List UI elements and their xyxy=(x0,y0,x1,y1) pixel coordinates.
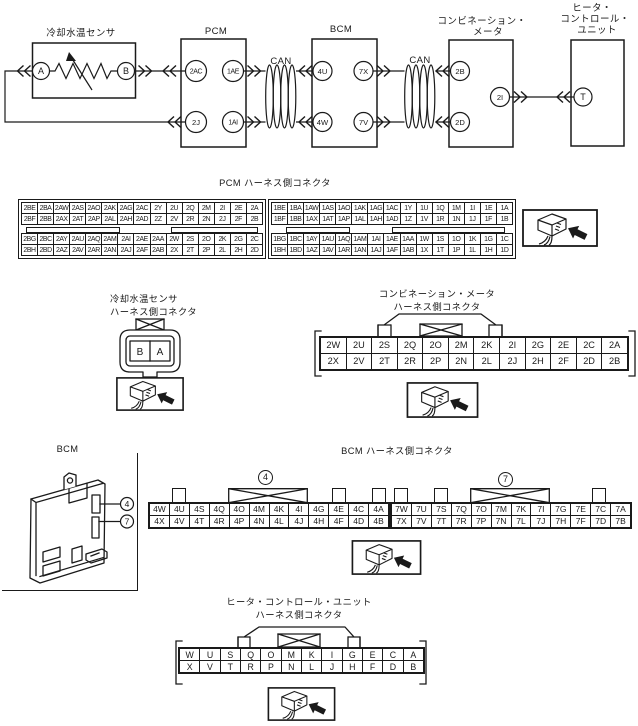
pin-cell: 1N xyxy=(448,213,465,225)
pin-cell: 2AR xyxy=(85,244,102,256)
wire-can-pcm-bcm xyxy=(244,71,314,122)
pin-cell: 7H xyxy=(550,515,571,528)
sensor-title: 冷却水温センサ xyxy=(46,27,115,39)
pcm-connector-grid-left: 2BE2BA2AW2AS2AO2AK2AG2AC2Y2U2Q2M2I2E2A 2… xyxy=(18,199,266,259)
pin-cell: 2L xyxy=(473,353,500,370)
pin-cell: 2J xyxy=(499,353,526,370)
pin-cell: 1AT xyxy=(319,213,336,225)
pin-cell: 1P xyxy=(448,244,465,256)
bcm-connector-label-4: 4 xyxy=(258,470,273,485)
pin-cell: 2N xyxy=(448,353,475,370)
pin-cell: 4L xyxy=(269,515,290,528)
meter-connector-grid: 2W2U2S2Q2O2M2K2I2G2E2C2A 2X2V2T2R2P2N2L2… xyxy=(319,336,629,371)
pin-cell: 2T xyxy=(371,353,398,370)
pin-cell: 1J xyxy=(464,213,481,225)
pin-cell: 7F xyxy=(570,515,591,528)
terminal-1ai: 1AI xyxy=(223,112,244,133)
pin-cell: 2P xyxy=(198,244,215,256)
pin-cell: 7T xyxy=(431,515,452,528)
pin-cell: T xyxy=(220,660,241,673)
pin-cell: B xyxy=(403,660,424,673)
terminal-b: B xyxy=(118,63,135,80)
pin-cell: 4X xyxy=(149,515,170,528)
pin-cell: 2H xyxy=(525,353,552,370)
svg-text:4U: 4U xyxy=(318,67,328,76)
pin-cell: N xyxy=(281,660,302,673)
pin-cell: 2AF xyxy=(133,244,150,256)
pin-cell: 2BD xyxy=(37,244,54,256)
heater-title-line3: ユニット xyxy=(577,25,617,36)
pin-row: 4X4V4T4R4P4N4L4J4H4F4D4B xyxy=(149,515,389,528)
pin-cell: 4D xyxy=(348,515,369,528)
connector-tab xyxy=(372,488,386,503)
heater-connector-title-line1: ヒータ・コントロール・ユニット xyxy=(199,596,399,609)
pin-cell: 2K xyxy=(473,337,500,354)
pin-cell: 7X xyxy=(391,515,412,528)
connector-view-icon xyxy=(350,540,423,575)
pin-cell: 1BH xyxy=(271,244,288,256)
connector-tab xyxy=(592,488,606,503)
pin-cell: 4P xyxy=(229,515,250,528)
keyway-bar xyxy=(286,227,351,233)
pin-cell: 1BF xyxy=(271,213,288,225)
pin-cell: 2AB xyxy=(150,244,167,256)
pin-cell: 2D xyxy=(576,353,603,370)
keyway-bar xyxy=(392,227,505,233)
keyway-bar xyxy=(171,227,258,233)
thermistor-arrow-head xyxy=(66,52,76,61)
terminal-4u: 4U xyxy=(313,62,332,81)
heater-title-line1: ヒータ・ xyxy=(572,3,612,14)
bcm-module-title: BCM xyxy=(40,443,95,456)
connector-view-icon xyxy=(114,377,186,411)
pin-cell: 2BF xyxy=(21,213,38,225)
pin-cell: 1AL xyxy=(351,213,368,225)
terminal-7x: 7X xyxy=(354,62,373,81)
pin-cell: 1AB xyxy=(400,244,417,256)
pin-cell: 2E xyxy=(550,337,577,354)
pin-cell: 2X xyxy=(166,244,183,256)
pin-cell: 1AH xyxy=(367,213,384,225)
svg-text:1AI: 1AI xyxy=(228,120,238,127)
pin-cell: 7J xyxy=(530,515,551,528)
circuit-diagram: A B 2AC 1AE 2J 1AI 4U 7X 4W 7V 2B 2D 2I … xyxy=(0,0,638,165)
pin-cell: 4H xyxy=(308,515,329,528)
pin-cell: 2P xyxy=(422,353,449,370)
pin-cell: 2BB xyxy=(37,213,54,225)
pin-cell: 2V xyxy=(346,353,373,370)
pin-cell: 2AP xyxy=(85,213,102,225)
pin-cell: 2X xyxy=(320,353,347,370)
bcm-connector-grid-7: 7W7U7S7Q7O7M7K7I7G7E7C7A 7X7V7T7R7P7N7L7… xyxy=(390,502,632,529)
pin-cell: 1AZ xyxy=(303,244,320,256)
pin-cell: 1H xyxy=(480,244,497,256)
terminal-7v: 7V xyxy=(354,113,373,132)
keyway-bar xyxy=(26,227,120,233)
heater-title-line2: コントロール・ xyxy=(560,14,629,25)
pin-cell: 2R xyxy=(397,353,424,370)
pin-cell: 1AP xyxy=(335,213,352,225)
sensor-connector-drawing: B A xyxy=(110,316,190,380)
pin-cell: 2AT xyxy=(69,213,86,225)
pin-cell: 4B xyxy=(368,515,389,528)
pin-cell: 2C xyxy=(576,337,603,354)
connector-keyway-gap xyxy=(21,225,263,233)
connector-view-icon xyxy=(265,687,338,721)
pin-cell: 2Z xyxy=(150,213,167,225)
pin-cell: 1AV xyxy=(319,244,336,256)
svg-text:2AC: 2AC xyxy=(190,69,203,76)
pcm-connector-grid-right: 1BE1BA1AW1AS1AO1AK1AG1AC1Y1U1Q1M1I1E1A 1… xyxy=(268,199,516,259)
pin-cell: F xyxy=(362,660,383,673)
svg-text:2I: 2I xyxy=(497,93,503,102)
pin-cell: 7B xyxy=(610,515,631,528)
callout-circle-7: 7 xyxy=(121,515,134,528)
pin-row: 2BF2BB2AX2AT2AP2AL2AH2AD2Z2V2R2N2J2F2B xyxy=(21,213,263,225)
pin-cell: 7D xyxy=(590,515,611,528)
svg-text:2D: 2D xyxy=(455,118,465,127)
meter-title-line2: メータ xyxy=(473,27,503,38)
pin-cell: 1X xyxy=(416,244,433,256)
pin-cell: 1AX xyxy=(303,213,320,225)
pin-row: 1BH1BD1AZ1AV1AR1AN1AJ1AF1AB1X1T1P1L1H1D xyxy=(271,244,513,256)
connector-arrow-marks xyxy=(18,66,571,128)
svg-text:B: B xyxy=(123,66,129,76)
connector-view-icon xyxy=(522,209,598,247)
terminal-2d: 2D xyxy=(451,113,470,132)
pin-cell: 2U xyxy=(346,337,373,354)
heater-connector-title: ヒータ・コントロール・ユニット ハーネス側コネクタ xyxy=(199,596,399,621)
pin-cell: 2V xyxy=(166,213,183,225)
bcm-title: BCM xyxy=(330,24,352,35)
connector-view-icon xyxy=(405,382,480,418)
pin-cell: 2AH xyxy=(117,213,134,225)
svg-text:4: 4 xyxy=(125,499,130,509)
pin-cell: 1AR xyxy=(335,244,352,256)
terminal-t: T xyxy=(574,88,592,106)
heater-connector-grid: WUSQOMKIGECA XVTRPNLJHFDB xyxy=(178,647,425,674)
terminal-2ac: 2AC xyxy=(186,61,207,82)
pin-cell: 7R xyxy=(451,515,472,528)
pin-cell: 1Z xyxy=(400,213,417,225)
pin-cell: 2AN xyxy=(101,244,118,256)
pin-cell: R xyxy=(240,660,261,673)
terminal-4w: 4W xyxy=(313,113,332,132)
end-bracket-right xyxy=(629,331,635,376)
svg-text:A: A xyxy=(38,66,44,76)
pin-cell: 7P xyxy=(471,515,492,528)
heater-connector-title-line2: ハーネス側コネクタ xyxy=(199,609,399,622)
pin-cell: V xyxy=(199,660,220,673)
pin-cell: 2A xyxy=(601,337,628,354)
pin-cell: 1BD xyxy=(287,244,304,256)
pin-cell: 1AN xyxy=(351,244,368,256)
pin-cell: 2F xyxy=(550,353,577,370)
sensor-connector-title: 冷却水温センサ ハーネス側コネクタ xyxy=(110,293,197,318)
pin-cell: 2G xyxy=(525,337,552,354)
pin-cell: 2D xyxy=(246,244,263,256)
pin-cell: 2BH xyxy=(21,244,38,256)
bcm-connector-label-7: 7 xyxy=(498,472,513,487)
terminal-2i: 2I xyxy=(491,88,510,107)
terminal-a: A xyxy=(33,63,50,80)
meter-title-line1: コンビネーション・ xyxy=(438,16,527,27)
pin-cell: 2R xyxy=(182,213,199,225)
pin-cell: 7N xyxy=(491,515,512,528)
connector-lock-box xyxy=(470,488,550,503)
pin-cell: 1T xyxy=(432,244,449,256)
pin-cell: 1AJ xyxy=(367,244,384,256)
pin-cell: 4J xyxy=(288,515,309,528)
pin-cell: 2AL xyxy=(101,213,118,225)
pin-cell: 2W xyxy=(320,337,347,354)
can-label-right: CAN xyxy=(409,55,430,66)
pin-cell: 1V xyxy=(416,213,433,225)
pin-cell: 2AV xyxy=(69,244,86,256)
terminal-1ae: 1AE xyxy=(223,61,244,82)
connector-tab xyxy=(394,488,408,503)
pcm-title: PCM xyxy=(205,26,227,37)
pin-cell: L xyxy=(301,660,322,673)
pin-cell: 4F xyxy=(328,515,349,528)
can-twisted-pair-right xyxy=(405,65,435,128)
callout-circle-4: 4 xyxy=(121,498,134,511)
bcm-module-drawing: 4 7 xyxy=(18,463,140,593)
svg-text:4W: 4W xyxy=(317,118,329,127)
pin-cell: 1L xyxy=(464,244,481,256)
can-label-left: CAN xyxy=(270,56,291,67)
pin-cell: 2O xyxy=(422,337,449,354)
pin-cell: 7L xyxy=(511,515,532,528)
pin-cell: 2F xyxy=(230,213,247,225)
bcm-connector-grid-4: 4W4U4S4Q4O4M4K4I4G4E4C4A 4X4V4T4R4P4N4L4… xyxy=(148,502,390,529)
pin-cell: 4N xyxy=(249,515,270,528)
svg-text:1AE: 1AE xyxy=(227,69,240,76)
wiring-diagram-page: A B 2AC 1AE 2J 1AI 4U 7X 4W 7V 2B 2D 2I … xyxy=(0,0,638,726)
terminal-2b: 2B xyxy=(451,62,470,81)
connector-tab xyxy=(332,488,346,503)
pin-row: 7X7V7T7R7P7N7L7J7H7F7D7B xyxy=(391,515,631,528)
connector-keyway-gap xyxy=(271,225,513,233)
pin-cell: 4R xyxy=(209,515,230,528)
pin-cell: 2AJ xyxy=(117,244,134,256)
svg-text:2B: 2B xyxy=(455,67,464,76)
pin-cell: 2S xyxy=(371,337,398,354)
pin-cell: 2AZ xyxy=(53,244,70,256)
svg-text:7X: 7X xyxy=(359,67,368,76)
pin-cell: H xyxy=(342,660,363,673)
pin-cell: 2AX xyxy=(53,213,70,225)
pin-cell: 1AD xyxy=(383,213,400,225)
pin-cell: 2L xyxy=(214,244,231,256)
pin-cell: 2H xyxy=(230,244,247,256)
pin-cell: 4V xyxy=(169,515,190,528)
thermistor-arrow xyxy=(71,57,92,90)
terminal-2j: 2J xyxy=(186,112,207,133)
pcm-connector-title: PCM ハーネス側コネクタ xyxy=(125,177,425,190)
pin-cell: 2N xyxy=(198,213,215,225)
sensor-connector-title-line1: 冷却水温センサ xyxy=(110,293,197,306)
svg-text:T: T xyxy=(580,92,586,102)
pin-row: 2BH2BD2AZ2AV2AR2AN2AJ2AF2AB2X2T2P2L2H2D xyxy=(21,244,263,256)
pin-row: 2W2U2S2Q2O2M2K2I2G2E2C2A xyxy=(320,337,628,354)
svg-text:2J: 2J xyxy=(192,118,200,127)
pin-row: XVTRPNLJHFDB xyxy=(179,660,424,673)
pin-cell: 2M xyxy=(448,337,475,354)
pin-cell: 2B xyxy=(601,353,628,370)
pin-row: 1BF1BB1AX1AT1AP1AL1AH1AD1Z1V1R1N1J1F1B xyxy=(271,213,513,225)
connector-lock-box xyxy=(228,488,308,503)
pin-cell: 2I xyxy=(499,337,526,354)
pin-b-label: B xyxy=(137,347,144,358)
pin-cell: 2AD xyxy=(133,213,150,225)
svg-text:7V: 7V xyxy=(359,118,369,127)
pin-cell: 7V xyxy=(411,515,432,528)
connector-tab xyxy=(172,488,186,503)
meter-connector-title-line1: コンビネーション・メータ xyxy=(337,288,537,301)
pin-cell: 1BB xyxy=(287,213,304,225)
pin-cell: 1D xyxy=(496,244,513,256)
pin-cell: 1F xyxy=(480,213,497,225)
connector-tab xyxy=(434,488,448,503)
svg-text:7: 7 xyxy=(125,517,130,527)
pin-a-label: A xyxy=(157,347,164,358)
pin-cell: 1R xyxy=(432,213,449,225)
pin-row: 2X2V2T2R2P2N2L2J2H2F2D2B xyxy=(320,353,628,370)
pin-cell: X xyxy=(179,660,200,673)
pin-cell: P xyxy=(260,660,281,673)
pin-cell: 1AF xyxy=(383,244,400,256)
pin-cell: 2J xyxy=(214,213,231,225)
can-twisted-pair-left xyxy=(266,65,296,128)
pin-cell: J xyxy=(321,660,342,673)
pin-cell: 2B xyxy=(246,213,263,225)
bcm-connector-title: BCM ハーネス側コネクタ xyxy=(297,445,497,458)
pin-cell: D xyxy=(382,660,403,673)
pin-cell: 2T xyxy=(182,244,199,256)
pin-cell: 4T xyxy=(189,515,210,528)
pin-cell: 1B xyxy=(496,213,513,225)
pin-cell: 2Q xyxy=(397,337,424,354)
